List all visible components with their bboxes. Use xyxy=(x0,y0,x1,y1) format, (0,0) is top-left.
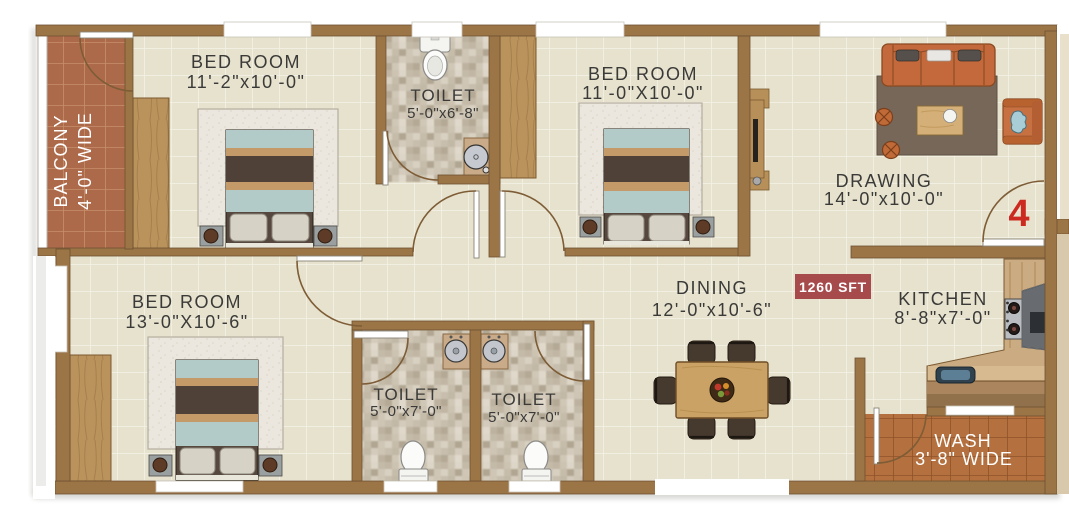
svg-text:BALCONY: BALCONY xyxy=(51,114,71,207)
svg-text:3'-8" WIDE: 3'-8" WIDE xyxy=(915,449,1013,469)
svg-text:11'-2"x10'-0": 11'-2"x10'-0" xyxy=(187,72,306,92)
svg-text:5'-0"x7'-0": 5'-0"x7'-0" xyxy=(370,403,442,420)
svg-text:TOILET: TOILET xyxy=(373,385,438,404)
svg-text:WASH: WASH xyxy=(934,431,991,451)
svg-text:KITCHEN: KITCHEN xyxy=(898,289,988,309)
svg-text:BED ROOM: BED ROOM xyxy=(588,64,698,84)
svg-text:12'-0"x10'-6": 12'-0"x10'-6" xyxy=(652,300,772,320)
svg-text:TOILET: TOILET xyxy=(410,86,475,105)
svg-text:4'-0" WIDE: 4'-0" WIDE xyxy=(75,112,95,210)
svg-text:5'-0"x6'-8": 5'-0"x6'-8" xyxy=(407,105,479,122)
svg-text:5'-0"x7'-0": 5'-0"x7'-0" xyxy=(488,409,560,426)
svg-text:1260 SFT: 1260 SFT xyxy=(799,279,867,295)
svg-text:11'-0"X10'-0": 11'-0"X10'-0" xyxy=(582,83,704,103)
svg-text:8'-8"x7'-0": 8'-8"x7'-0" xyxy=(894,308,991,328)
svg-text:14'-0"x10'-0": 14'-0"x10'-0" xyxy=(824,189,944,209)
svg-text:4: 4 xyxy=(1008,193,1029,235)
svg-text:DRAWING: DRAWING xyxy=(836,171,933,191)
svg-text:TOILET: TOILET xyxy=(491,390,556,409)
svg-text:13'-0"X10'-6": 13'-0"X10'-6" xyxy=(125,312,248,332)
svg-text:BED ROOM: BED ROOM xyxy=(132,292,242,312)
svg-text:DINING: DINING xyxy=(676,278,748,298)
svg-text:BED ROOM: BED ROOM xyxy=(191,52,301,72)
